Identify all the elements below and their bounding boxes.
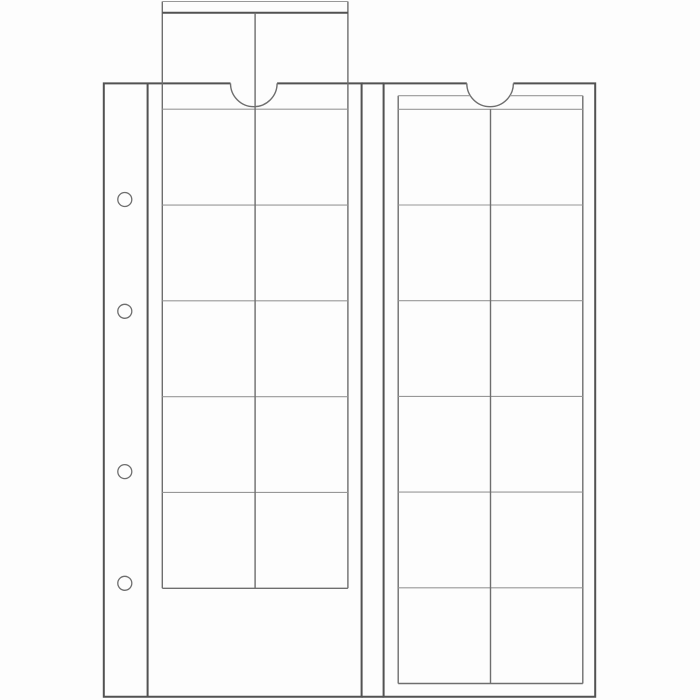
punch-hole (118, 193, 132, 207)
right-sheet-outline (384, 83, 596, 696)
punch-hole (118, 576, 132, 590)
left-pocket-grid (162, 13, 348, 589)
left-sheet (104, 2, 362, 697)
coin-sheets-drawing (0, 0, 700, 700)
left-thumb-notch-icon (231, 83, 278, 106)
left-punch-holes (118, 193, 132, 591)
punch-hole (118, 465, 132, 479)
left-sheet-outline (104, 83, 362, 696)
right-sheet (384, 83, 596, 696)
right-pocket-sheet (398, 96, 583, 684)
right-thumb-notch-icon (467, 83, 514, 106)
punch-hole (118, 304, 132, 318)
